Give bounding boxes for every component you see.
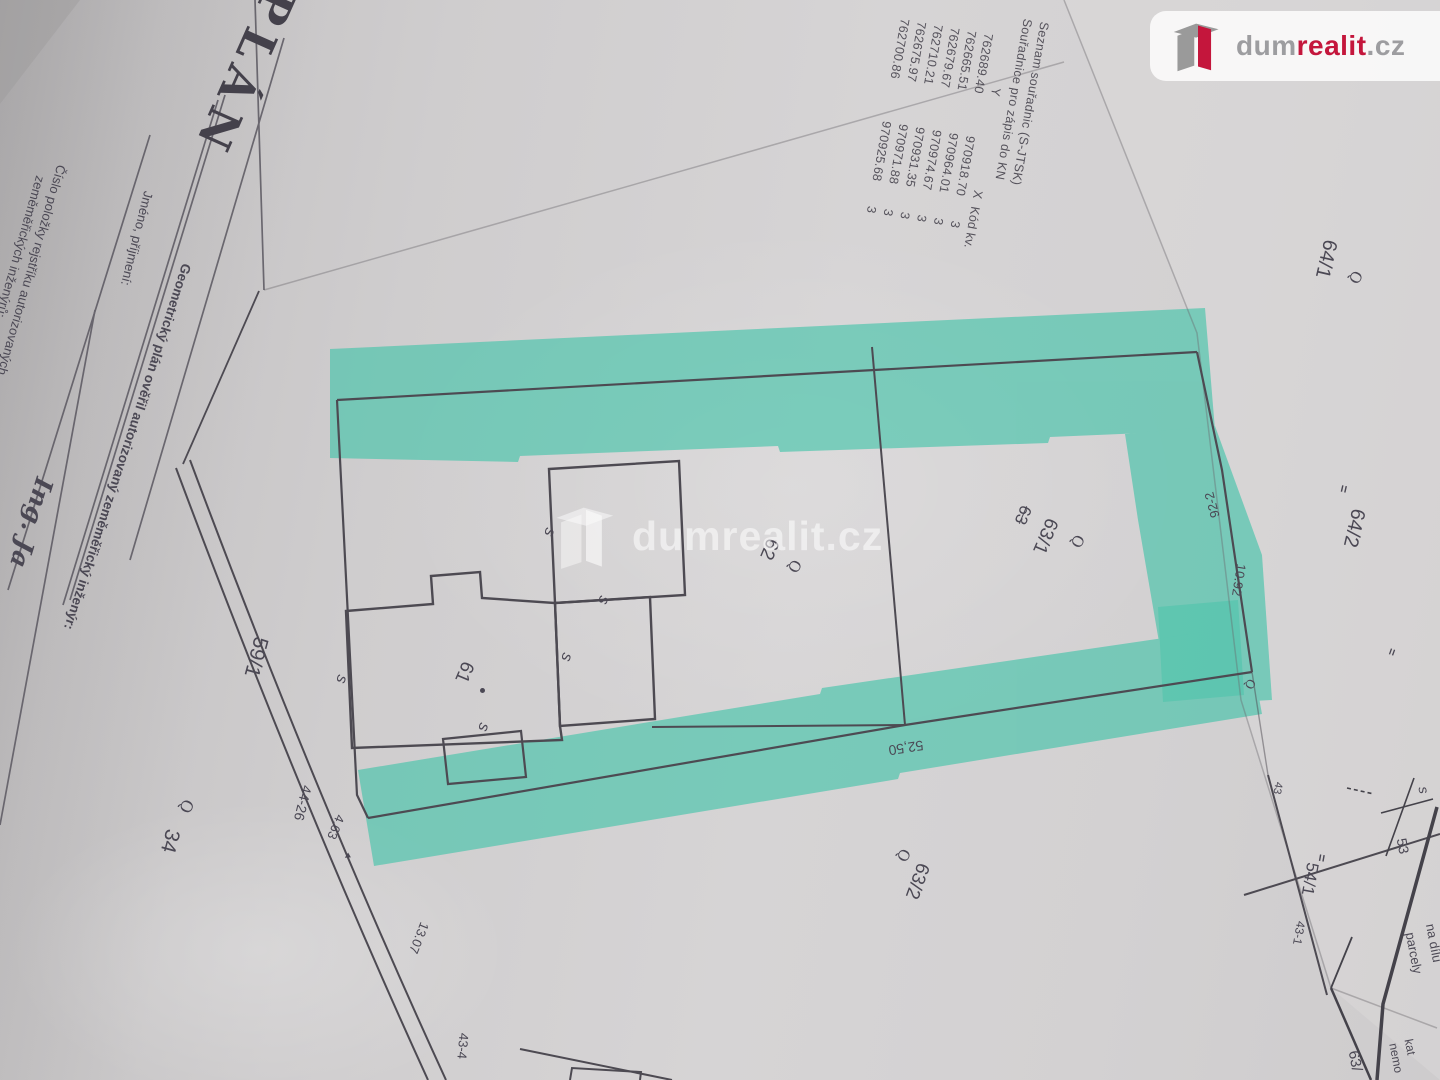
highlight-band-bottom [358, 626, 1262, 866]
dumrealit-logo: dumrealit.cz [1150, 11, 1440, 81]
geometric-plan-photo: Seznam souřadnic (S-JTSK) Souřadnice pro… [0, 0, 1440, 1080]
logo-building-icon [1170, 17, 1226, 75]
bottom-fragments [520, 1049, 672, 1080]
point-label-43: 43 [1271, 781, 1284, 795]
under-sheet-table-lines [1331, 778, 1437, 1080]
tick-mark: = [1315, 853, 1329, 863]
logo-cz: .cz [1367, 30, 1406, 61]
house-dot-mark [480, 688, 485, 693]
watermark-text: dumrealit.cz [632, 513, 883, 560]
logo-realit: realit [1297, 30, 1367, 61]
point-label-43-4: 43-4 [455, 1032, 470, 1059]
under-sheet-53: 53 [1395, 837, 1412, 855]
under-sheet-kat: kat [1403, 1038, 1418, 1056]
logo-dum: dum [1236, 30, 1297, 61]
highlight-band-top [330, 308, 1215, 462]
under-sheet-63: 63/ [1346, 1049, 1365, 1072]
logo-wordmark: dumrealit.cz [1236, 30, 1405, 62]
parcel-label-34: 34 [157, 827, 183, 855]
watermark-building-icon [552, 498, 620, 574]
watermark: dumrealit.cz [552, 498, 883, 574]
